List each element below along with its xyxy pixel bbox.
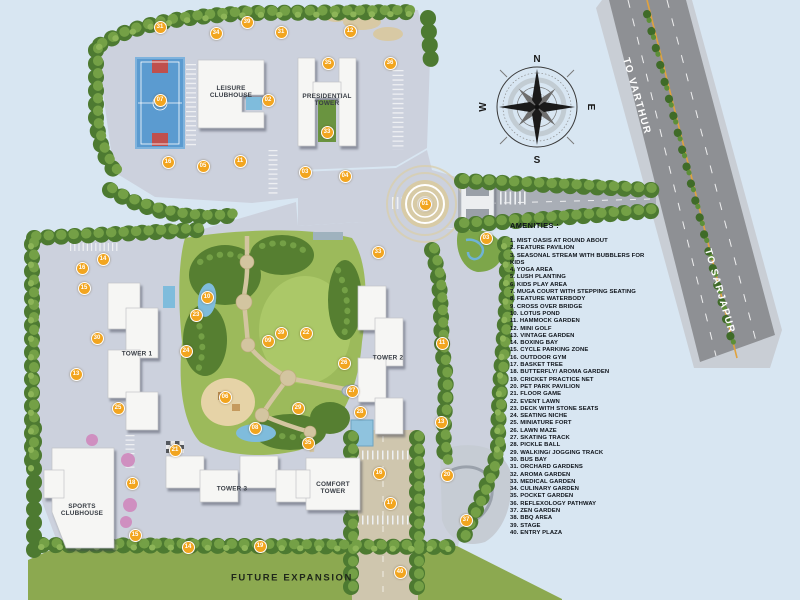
feature-waterbody xyxy=(236,424,276,442)
masterplan-canvas: TO VARTHUR TO SARJAPUR xyxy=(0,0,800,600)
legend-item: 38. BBQ AREA xyxy=(510,515,660,522)
central-park xyxy=(179,230,365,455)
legend-item: 14. BOXING BAY xyxy=(510,340,660,347)
legend-item: 3. SEASONAL STREAM WITH BUBBLERS FOR KID… xyxy=(510,253,660,268)
legend-item: 6. KIDS PLAY AREA xyxy=(510,282,660,289)
legend-item: 12. MINI GOLF xyxy=(510,326,660,333)
legend-item: 24. SEATING NICHE xyxy=(510,413,660,420)
legend-item: 1. MIST OASIS AT ROUND ABOUT xyxy=(510,238,660,245)
legend-item: 13. VINTAGE GARDEN xyxy=(510,333,660,340)
legend-item: 23. DECK WITH STONE SEATS xyxy=(510,406,660,413)
legend-item: 4. YOGA AREA xyxy=(510,267,660,274)
play-structure xyxy=(232,404,240,411)
legend-item: 39. STAGE xyxy=(510,523,660,530)
tower-1-label: TOWER 1 xyxy=(122,350,152,357)
legend-item: 25. MINIATURE FORT xyxy=(510,420,660,427)
masterplan-svg: TO VARTHUR TO SARJAPUR xyxy=(0,0,800,600)
cricket-net xyxy=(313,232,343,240)
comfort-tower-label: COMFORT TOWER xyxy=(316,481,350,495)
lap-pool xyxy=(163,286,175,308)
legend-item: 27. SKATING TRACK xyxy=(510,435,660,442)
legend-item: 30. BUS BAY xyxy=(510,457,660,464)
legend-item: 11. HAMMOCK GARDEN xyxy=(510,318,660,325)
future-expansion-label: FUTURE EXPANSION xyxy=(231,573,353,584)
legend-item: 40. ENTRY PLAZA xyxy=(510,530,660,537)
amenities-list: 1. MIST OASIS AT ROUND ABOUT2. FEATURE P… xyxy=(510,238,660,537)
legend-item: 36. REFLEXOLOGY PATHWAY xyxy=(510,501,660,508)
amenities-title: AMENITIES : xyxy=(510,221,660,230)
legend-item: 22. EVENT LAWN xyxy=(510,399,660,406)
legend-item: 9. CROSS OVER BRIDGE xyxy=(510,304,660,311)
legend-item: 31. ORCHARD GARDENS xyxy=(510,464,660,471)
presidential-tower-label: PRESIDENTIAL TOWER xyxy=(302,93,351,107)
floor-game xyxy=(166,441,184,453)
legend-item: 29. WALKING/ JOGGING TRACK xyxy=(510,450,660,457)
legend-item: 21. FLOOR GAME xyxy=(510,391,660,398)
legend-item: 19. CRICKET PRACTICE NET xyxy=(510,377,660,384)
legend-item: 26. LAWN MAZE xyxy=(510,428,660,435)
legend-item: 34. CULINARY GARDEN xyxy=(510,486,660,493)
sports-clubhouse-label: SPORTS CLUBHOUSE xyxy=(61,503,103,517)
legend-item: 32. AROMA GARDEN xyxy=(510,472,660,479)
compass-n: N xyxy=(533,54,540,65)
legend-item: 10. LOTUS POND xyxy=(510,311,660,318)
legend-item: 37. ZEN GARDEN xyxy=(510,508,660,515)
compass-s: S xyxy=(534,155,541,166)
tower-2-label: TOWER 2 xyxy=(373,354,403,361)
legend-item: 7. MUGA COURT WITH STEPPING SEATING xyxy=(510,289,660,296)
legend-item: 28. PICKLE BALL xyxy=(510,442,660,449)
compass-rose: N S E W xyxy=(478,54,596,166)
compass-e: E xyxy=(585,104,596,111)
legend-item: 33. MEDICAL GARDEN xyxy=(510,479,660,486)
legend-item: 2. FEATURE PAVILION xyxy=(510,245,660,252)
muga-court xyxy=(136,58,184,148)
miniature-fort xyxy=(218,392,228,400)
leisure-clubhouse-label: LEISURE CLUBHOUSE xyxy=(210,85,252,99)
legend-item: 16. OUTDOOR GYM xyxy=(510,355,660,362)
legend-item: 5. LUSH PLANTING xyxy=(510,274,660,281)
compass-w: W xyxy=(478,102,489,112)
legend-item: 20. PET PARK PAVILION xyxy=(510,384,660,391)
legend-item: 17. BASKET TREE xyxy=(510,362,660,369)
legend-item: 15. CYCLE PARKING ZONE xyxy=(510,347,660,354)
legend-item: 8. FEATURE WATERBODY xyxy=(510,296,660,303)
kids-play-area xyxy=(201,378,255,426)
amenities-legend: AMENITIES : 1. MIST OASIS AT ROUND ABOUT… xyxy=(510,221,660,537)
legend-item: 18. BUTTERFLY/ AROMA GARDEN xyxy=(510,369,660,376)
tower-3-label: TOWER 3 xyxy=(217,485,247,492)
legend-item: 35. POCKET GARDEN xyxy=(510,493,660,500)
